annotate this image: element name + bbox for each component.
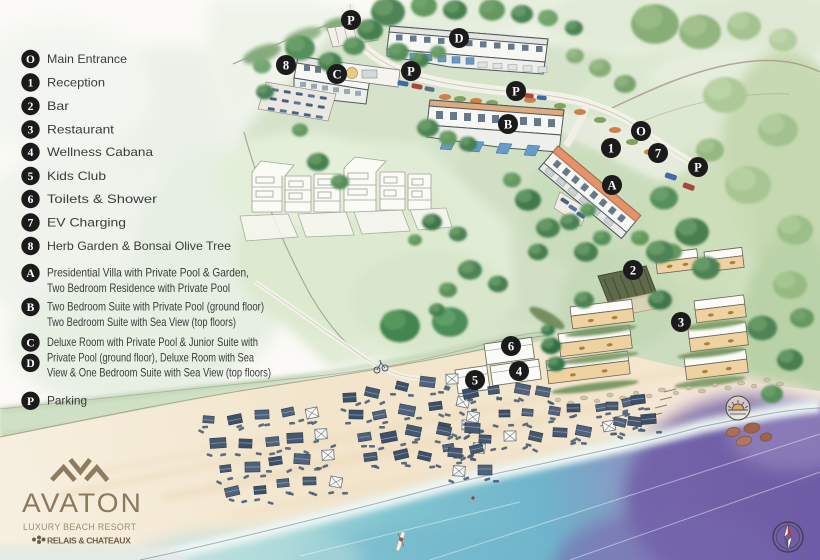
svg-text:P: P	[512, 84, 520, 98]
svg-text:P: P	[407, 64, 415, 78]
svg-text:C: C	[332, 67, 341, 81]
svg-text:AVATON: AVATON	[22, 488, 143, 518]
svg-text:Bar: Bar	[47, 99, 69, 113]
svg-text:LUXURY BEACH RESORT: LUXURY BEACH RESORT	[23, 522, 137, 532]
svg-text:Reception: Reception	[47, 76, 105, 90]
svg-text:4: 4	[516, 364, 523, 378]
svg-text:Toilets & Shower: Toilets & Shower	[47, 192, 157, 206]
svg-text:Deluxe Room with Private Pool: Deluxe Room with Private Pool & Junior S…	[47, 335, 258, 349]
svg-text:6: 6	[28, 194, 34, 206]
svg-text:EV Charging: EV Charging	[47, 216, 126, 230]
svg-text:2: 2	[630, 263, 636, 277]
svg-text:Herb Garden & Bonsai Olive Tre: Herb Garden & Bonsai Olive Tree	[47, 239, 231, 253]
svg-text:8: 8	[283, 58, 289, 72]
svg-text:P: P	[347, 13, 355, 27]
svg-text:B: B	[504, 117, 512, 131]
svg-text:Two Bedroom Residence with Pri: Two Bedroom Residence with Private Pool	[47, 281, 230, 295]
svg-text:P: P	[27, 396, 34, 408]
svg-text:7: 7	[655, 146, 661, 160]
svg-text:4: 4	[28, 147, 34, 159]
svg-text:D: D	[454, 31, 463, 45]
svg-text:Restaurant: Restaurant	[47, 123, 115, 137]
svg-text:Two Bedroom Suite with Sea Vie: Two Bedroom Suite with Sea View (top flo…	[47, 315, 236, 329]
svg-text:O: O	[26, 54, 35, 66]
svg-text:Presidential Villa with Privat: Presidential Villa with Private Pool & G…	[47, 266, 249, 280]
svg-text:3: 3	[28, 125, 34, 137]
svg-text:Main Entrance: Main Entrance	[47, 52, 127, 66]
svg-text:O: O	[636, 124, 646, 138]
svg-text:1: 1	[28, 78, 34, 90]
svg-text:A: A	[607, 178, 616, 192]
svg-text:C: C	[26, 338, 34, 350]
svg-text:6: 6	[508, 339, 514, 353]
svg-text:7: 7	[28, 218, 34, 230]
svg-text:Parking: Parking	[47, 393, 87, 407]
svg-text:Two Bedroom Suite with Private: Two Bedroom Suite with Private Pool (gro…	[47, 300, 264, 314]
svg-text:View & One Bedroom Suite with: View & One Bedroom Suite with Sea View (…	[47, 366, 271, 380]
svg-text:1: 1	[608, 141, 614, 155]
svg-text:Private Pool (ground floor), D: Private Pool (ground floor), Deluxe Room…	[47, 350, 254, 364]
svg-text:RELAIS & CHATEAUX: RELAIS & CHATEAUX	[47, 536, 131, 546]
svg-text:Wellness Cabana: Wellness Cabana	[47, 145, 153, 159]
svg-text:5: 5	[28, 171, 34, 183]
svg-text:8: 8	[28, 241, 34, 253]
svg-text:5: 5	[472, 373, 478, 387]
svg-text:P: P	[694, 160, 702, 174]
svg-text:D: D	[26, 358, 34, 370]
svg-text:3: 3	[678, 315, 684, 329]
svg-text:A: A	[26, 268, 35, 280]
svg-text:2: 2	[28, 101, 34, 113]
svg-text:B: B	[27, 302, 35, 314]
svg-text:Kids Club: Kids Club	[47, 169, 106, 183]
